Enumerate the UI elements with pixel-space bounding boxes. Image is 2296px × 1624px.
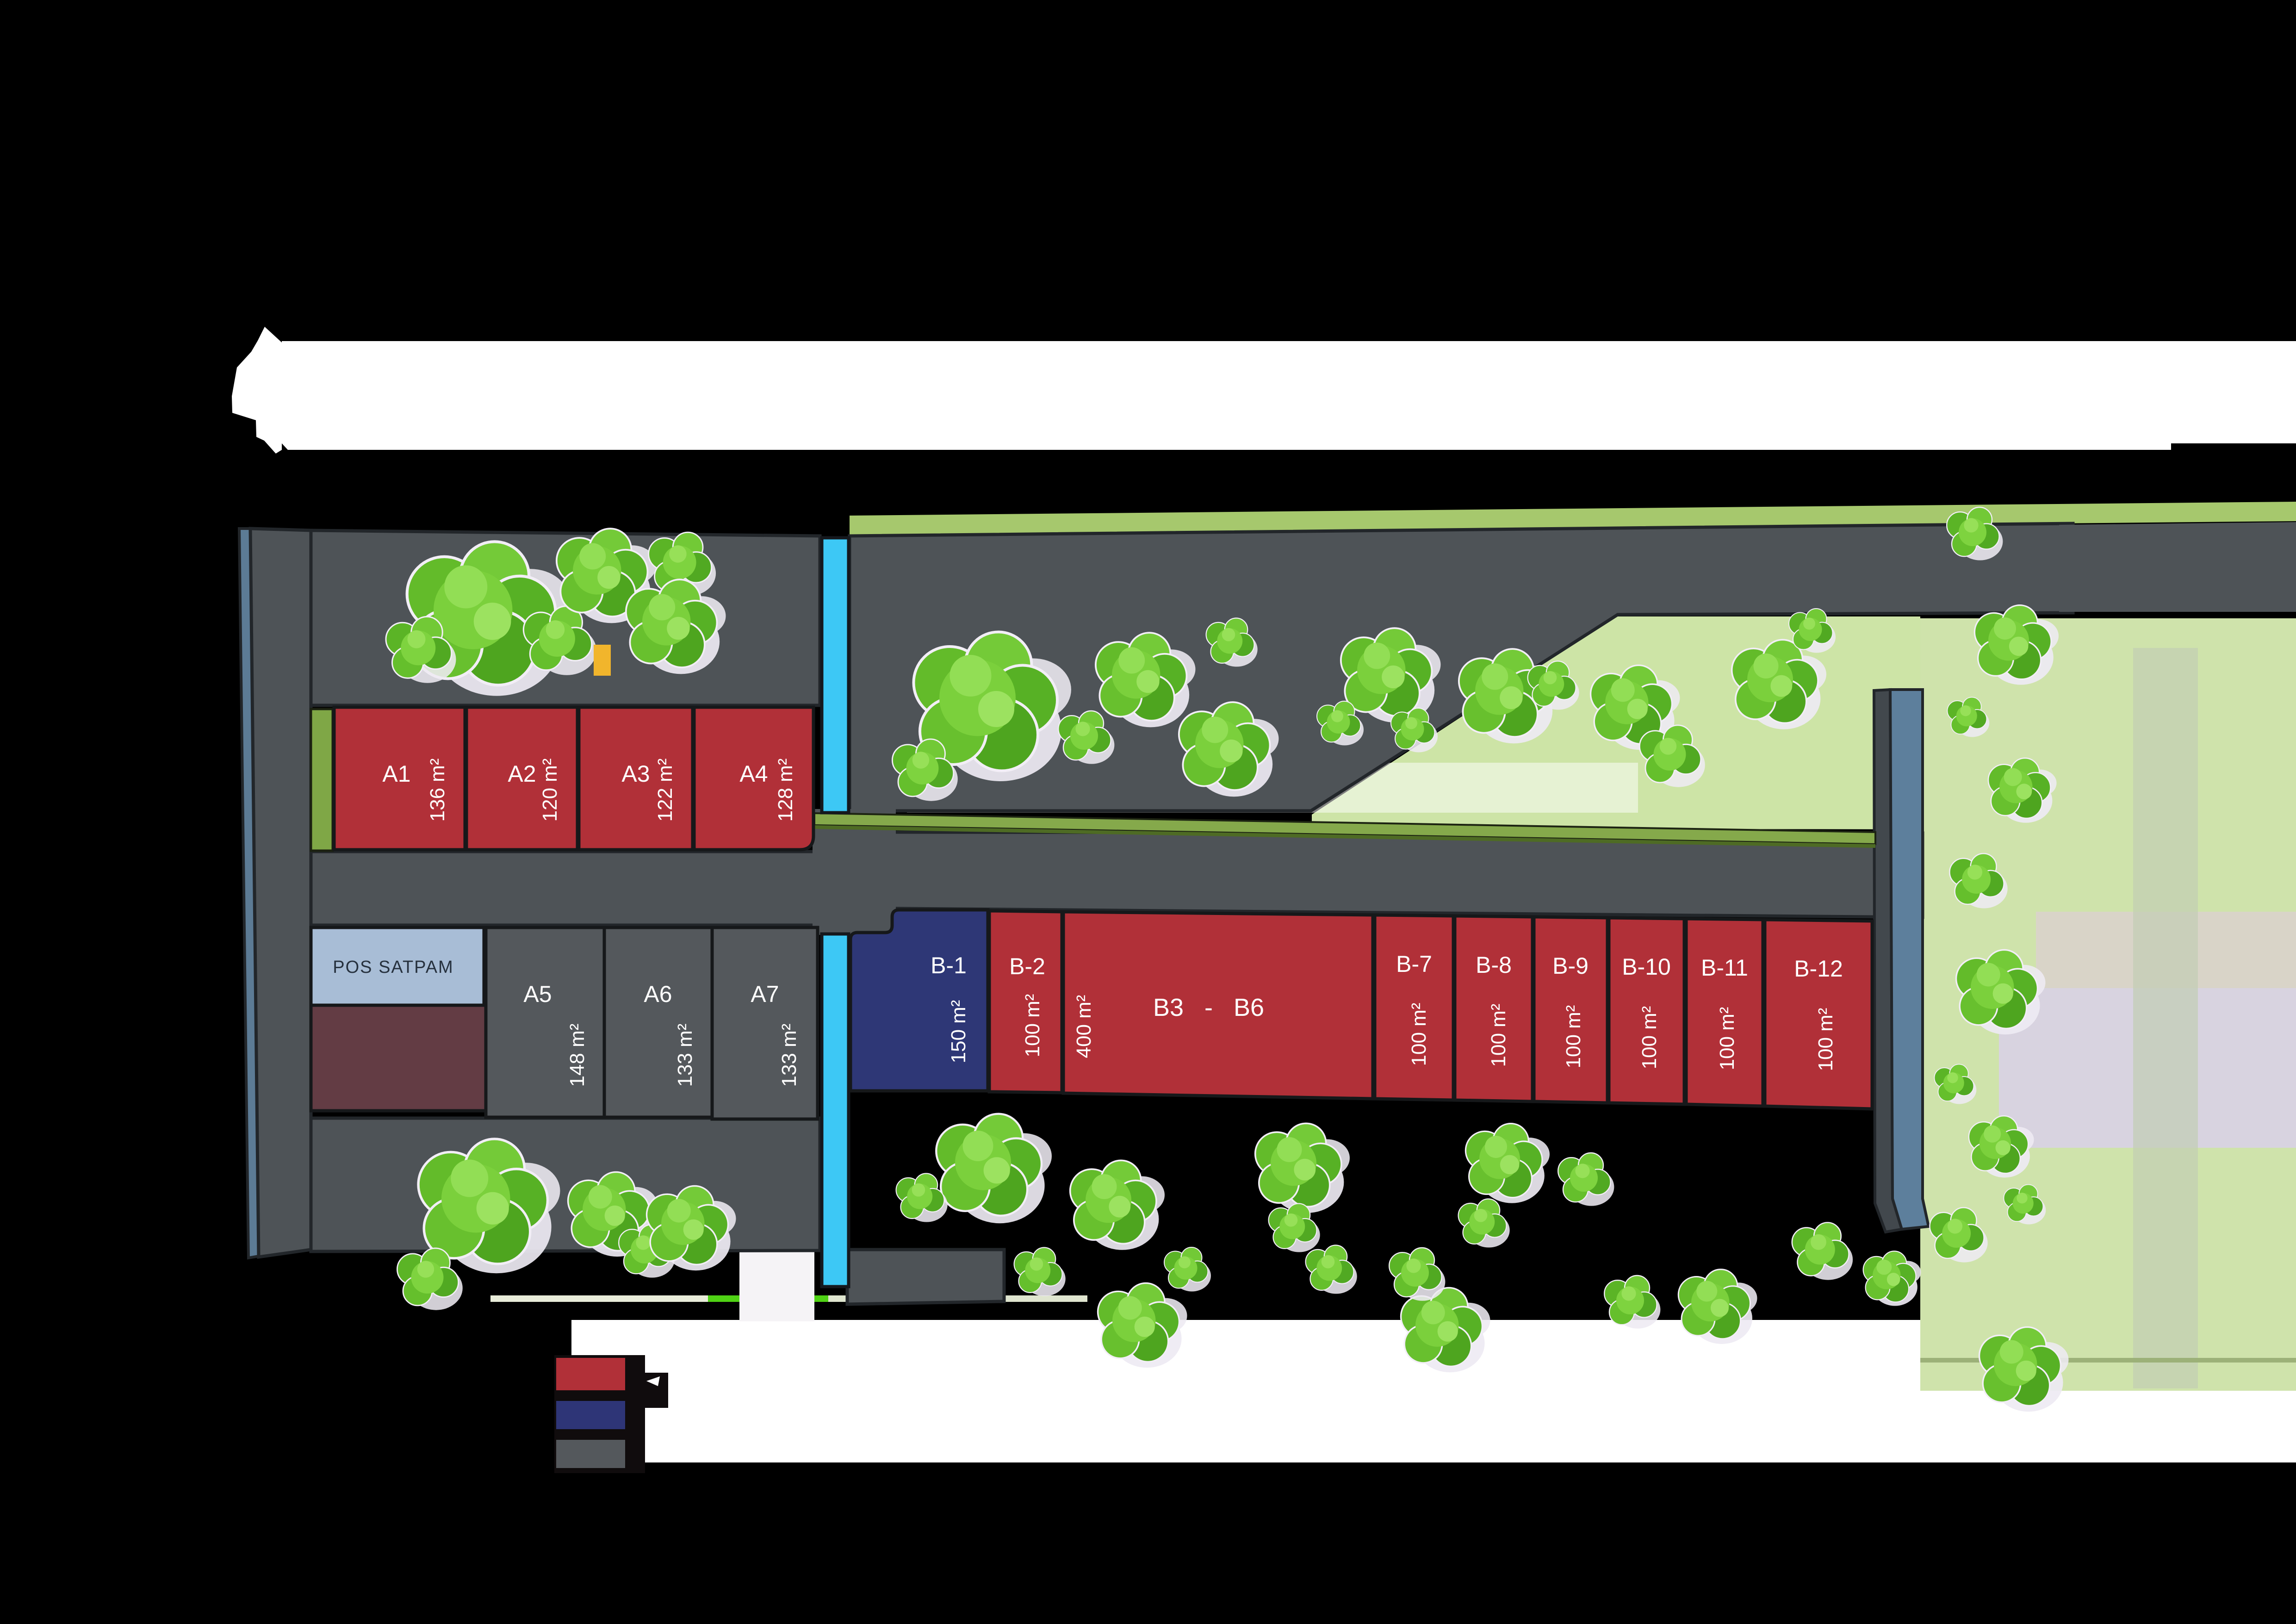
svg-text:148 m²: 148 m² — [566, 1024, 589, 1087]
svg-text:A5: A5 — [523, 981, 552, 1007]
svg-text:B-10: B-10 — [1622, 954, 1671, 980]
svg-text:100 m²: 100 m² — [1716, 1007, 1738, 1070]
svg-text:136 m²: 136 m² — [426, 759, 449, 822]
svg-text:B-9: B-9 — [1552, 953, 1589, 979]
svg-text:100 m²: 100 m² — [1814, 1008, 1837, 1071]
svg-text:A6: A6 — [644, 981, 672, 1007]
svg-text:B3 - B6: B3 - B6 — [1153, 994, 1264, 1021]
svg-text:400 m²: 400 m² — [1073, 995, 1095, 1058]
svg-text:B-1: B-1 — [931, 952, 967, 978]
svg-text:133 m²: 133 m² — [778, 1024, 800, 1087]
svg-text:A4: A4 — [739, 761, 768, 787]
svg-text:B-11: B-11 — [1701, 955, 1748, 981]
svg-text:B-7: B-7 — [1396, 951, 1432, 977]
svg-text:100 m²: 100 m² — [1562, 1005, 1585, 1069]
svg-text:B-12: B-12 — [1794, 956, 1843, 982]
svg-text:B-2: B-2 — [1009, 953, 1045, 979]
svg-text:128 m²: 128 m² — [774, 759, 797, 822]
svg-text:100 m²: 100 m² — [1021, 994, 1044, 1058]
svg-text:A3: A3 — [621, 761, 650, 787]
svg-text:A7: A7 — [751, 981, 779, 1007]
svg-text:100 m²: 100 m² — [1408, 1003, 1430, 1066]
svg-text:100 m²: 100 m² — [1487, 1004, 1510, 1067]
svg-text:133 m²: 133 m² — [674, 1024, 696, 1087]
svg-text:POS SATPAM: POS SATPAM — [333, 958, 453, 977]
svg-text:122 m²: 122 m² — [654, 759, 676, 822]
svg-text:A2: A2 — [508, 761, 536, 787]
svg-text:B-8: B-8 — [1476, 952, 1512, 978]
svg-text:100 m²: 100 m² — [1638, 1006, 1661, 1070]
svg-text:A1: A1 — [382, 761, 410, 787]
svg-text:150 m²: 150 m² — [947, 1000, 970, 1064]
svg-text:120 m²: 120 m² — [539, 759, 561, 822]
